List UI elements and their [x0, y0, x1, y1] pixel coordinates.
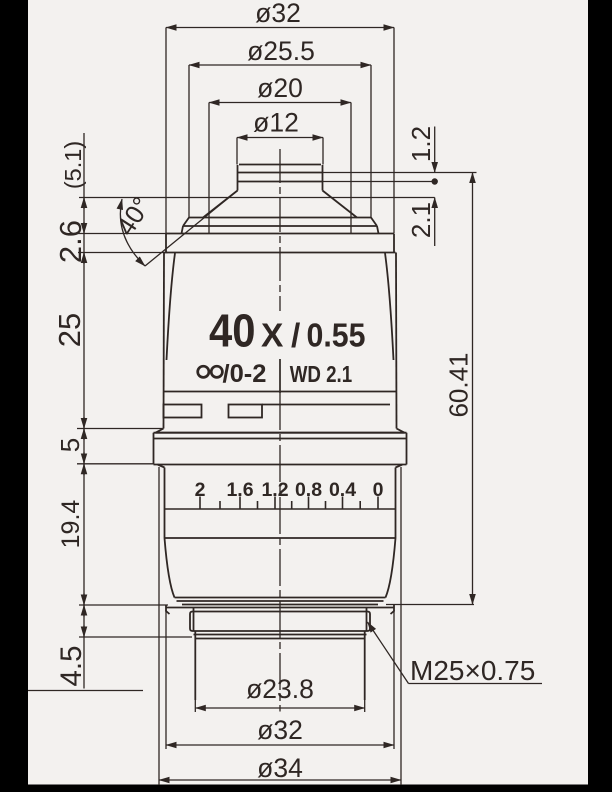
- svg-text:ø32: ø32: [255, 0, 301, 28]
- svg-text:40: 40: [209, 305, 256, 357]
- svg-text:/0-2: /0-2: [223, 360, 267, 388]
- svg-text:/: /: [291, 318, 300, 355]
- svg-text:WD 2.1: WD 2.1: [290, 361, 353, 387]
- svg-text:ø20: ø20: [257, 73, 303, 103]
- svg-text:2.6: 2.6: [53, 220, 88, 263]
- svg-text:2.1: 2.1: [406, 202, 436, 238]
- svg-text:ø25.5: ø25.5: [247, 36, 315, 66]
- svg-text:5: 5: [55, 438, 85, 452]
- svg-text:1.2: 1.2: [406, 126, 436, 162]
- svg-text:0.55: 0.55: [307, 318, 366, 355]
- svg-text:19.4: 19.4: [57, 500, 85, 549]
- svg-text:ø34: ø34: [257, 753, 303, 783]
- svg-text:M25×0.75: M25×0.75: [410, 655, 535, 686]
- svg-text:ø23.8: ø23.8: [246, 674, 314, 704]
- svg-text:25: 25: [52, 313, 87, 347]
- svg-text:60.41: 60.41: [444, 352, 474, 417]
- svg-text:(5.1): (5.1): [60, 141, 86, 189]
- svg-text:ø12: ø12: [253, 108, 299, 138]
- svg-text:ø32: ø32: [257, 715, 303, 745]
- svg-text:X: X: [261, 318, 284, 355]
- svg-text:4.5: 4.5: [55, 645, 88, 686]
